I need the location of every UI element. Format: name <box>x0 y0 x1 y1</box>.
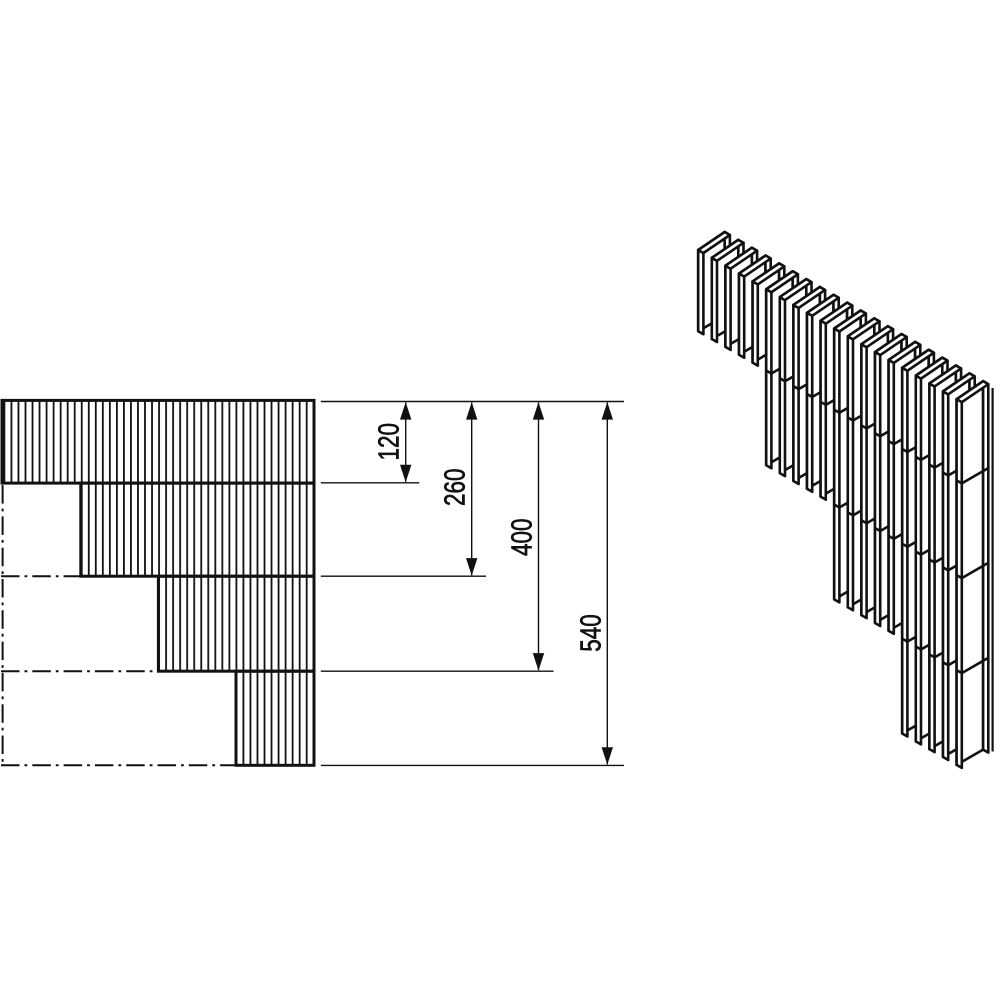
svg-text:260: 260 <box>440 468 472 506</box>
svg-text:540: 540 <box>575 614 607 652</box>
svg-text:120: 120 <box>374 423 406 461</box>
svg-text:400: 400 <box>507 519 539 557</box>
